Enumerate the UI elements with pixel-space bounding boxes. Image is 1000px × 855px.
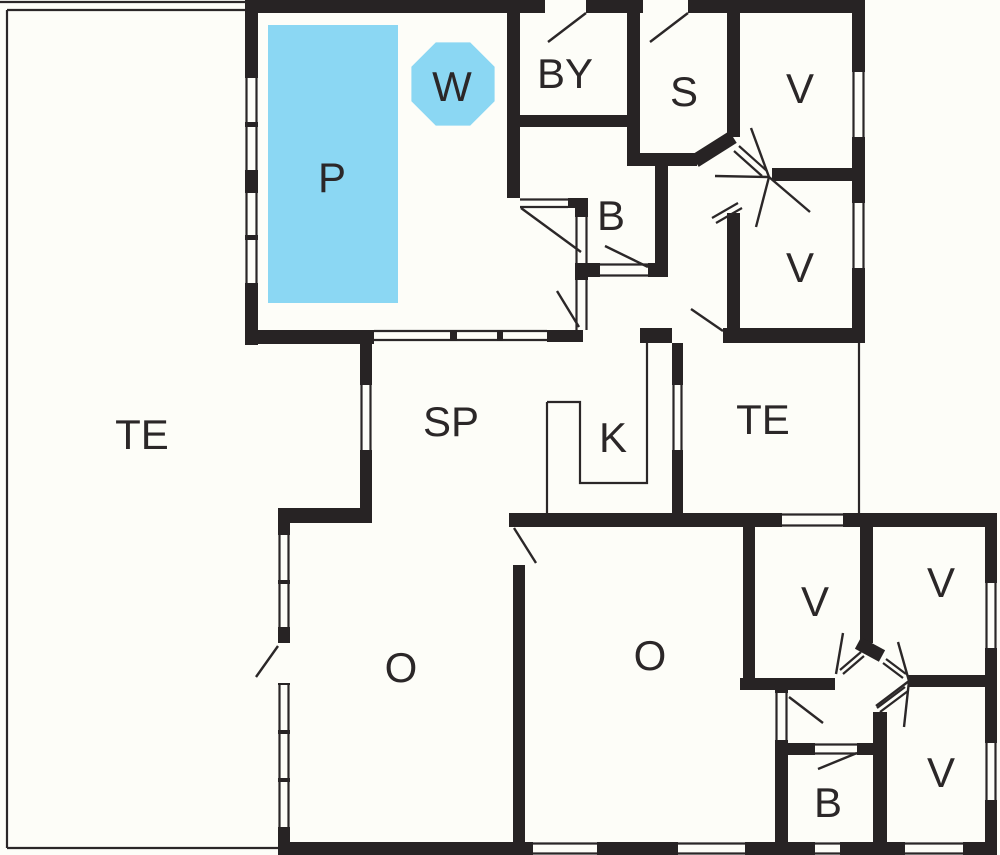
room-label-sauna: S [670, 68, 698, 115]
room-label-bath-annex: B [814, 779, 842, 826]
kitchen-counter [547, 343, 647, 513]
room-label-living-middle: O [634, 632, 667, 679]
room-label-bedroom-annex-2: V [927, 559, 955, 606]
room-label-utility: BY [537, 50, 593, 97]
room-label-whirlpool: W [432, 63, 472, 110]
room-label-bedroom-annex-3: V [927, 749, 955, 796]
room-labels: TE P W BY S V V B SP K TE O O V V V B [115, 50, 955, 826]
room-label-bedroom-top-2: V [786, 244, 814, 291]
room-label-bedroom-top-1: V [786, 65, 814, 112]
room-label-bedroom-annex-1: V [801, 578, 829, 625]
floor-plan: TE P W BY S V V B SP K TE O O V V V B [0, 0, 1000, 855]
room-label-terrace-right: TE [736, 396, 790, 443]
room-label-bath-middle: B [597, 192, 625, 239]
room-label-dining: SP [423, 398, 479, 445]
room-label-pool: P [318, 154, 346, 201]
room-label-living-left: O [385, 644, 418, 691]
room-label-terrace-left: TE [115, 411, 169, 458]
room-label-kitchen: K [599, 414, 627, 461]
floor-plan-canvas: TE P W BY S V V B SP K TE O O V V V B [0, 0, 1000, 855]
